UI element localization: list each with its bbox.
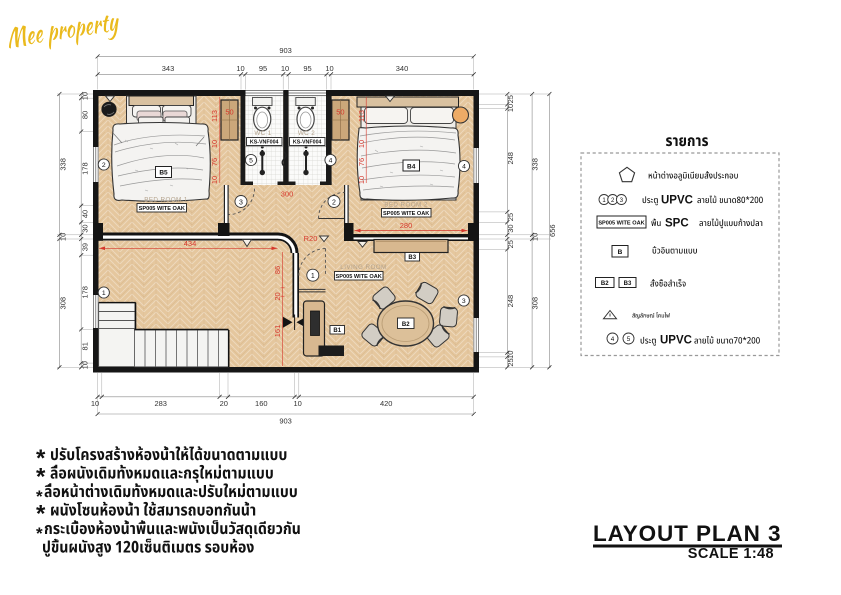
svg-text:1: 1: [311, 273, 315, 280]
svg-text:3: 3: [239, 199, 243, 206]
svg-text:113: 113: [210, 110, 219, 122]
svg-text:76: 76: [210, 158, 219, 166]
svg-text:B5: B5: [159, 170, 168, 177]
svg-text:LIVING ROOM: LIVING ROOM: [340, 264, 386, 271]
svg-text:10: 10: [236, 64, 244, 73]
svg-text:UPVC: UPVC: [660, 335, 692, 347]
svg-text:1: 1: [102, 290, 106, 297]
svg-text:283: 283: [154, 399, 167, 408]
svg-text:SP005 WITE OAK: SP005 WITE OAK: [336, 274, 382, 280]
svg-text:SPC: SPC: [665, 218, 689, 230]
svg-text:80: 80: [80, 111, 89, 119]
svg-text:40: 40: [80, 210, 89, 218]
svg-text:SP005 WITE OAK: SP005 WITE OAK: [383, 211, 429, 217]
svg-text:10: 10: [58, 233, 67, 241]
svg-text:113: 113: [357, 110, 366, 122]
svg-text:25: 25: [506, 95, 515, 103]
svg-text:343: 343: [162, 64, 175, 73]
svg-text:3: 3: [462, 298, 466, 305]
svg-text:420: 420: [380, 399, 393, 408]
svg-text:10: 10: [506, 104, 515, 112]
svg-text:248: 248: [506, 295, 515, 308]
svg-text:10: 10: [531, 233, 540, 241]
svg-text:161: 161: [273, 325, 282, 338]
svg-text:338: 338: [531, 158, 540, 171]
svg-text:R20: R20: [304, 234, 318, 243]
svg-text:*: *: [36, 524, 43, 543]
svg-text:2: 2: [102, 162, 106, 169]
svg-text:20: 20: [220, 399, 228, 408]
svg-text:30: 30: [506, 224, 515, 232]
svg-text:10: 10: [357, 176, 366, 184]
svg-text:LAYOUT PLAN 3: LAYOUT PLAN 3: [593, 521, 781, 546]
svg-text:5: 5: [249, 158, 253, 165]
svg-text:903: 903: [279, 417, 292, 426]
svg-text:WC 2: WC 2: [298, 130, 315, 137]
svg-text:KS-VNF004: KS-VNF004: [250, 140, 279, 146]
svg-text:39: 39: [80, 243, 89, 251]
svg-text:308: 308: [58, 297, 67, 310]
svg-text:BED ROOM 1: BED ROOM 1: [144, 197, 188, 204]
svg-text:25: 25: [506, 240, 515, 248]
svg-text:10: 10: [91, 399, 99, 408]
svg-text:248: 248: [506, 152, 515, 165]
svg-text:10: 10: [325, 64, 333, 73]
svg-text:340: 340: [396, 64, 409, 73]
svg-text:338: 338: [58, 158, 67, 171]
svg-text:25: 25: [506, 213, 515, 221]
svg-text:10: 10: [80, 361, 89, 369]
svg-text:903: 903: [279, 46, 292, 55]
svg-text:BED ROOM 2: BED ROOM 2: [384, 202, 428, 209]
svg-text:UPVC: UPVC: [661, 195, 693, 207]
svg-text:86: 86: [273, 266, 282, 274]
svg-text:10: 10: [281, 64, 289, 73]
svg-text:10: 10: [294, 399, 302, 408]
svg-text:4: 4: [462, 164, 466, 171]
svg-text:B3: B3: [624, 281, 632, 287]
svg-text:30: 30: [80, 224, 89, 232]
svg-text:B: B: [618, 249, 623, 256]
svg-text:160: 160: [255, 399, 268, 408]
svg-text:81: 81: [80, 342, 89, 350]
svg-text:SCALE 1:48: SCALE 1:48: [688, 546, 774, 562]
svg-text:KS-VNF004: KS-VNF004: [293, 140, 322, 146]
svg-text:50: 50: [336, 108, 344, 117]
svg-text:B3: B3: [408, 255, 416, 261]
svg-text:178: 178: [80, 162, 89, 175]
svg-text:10: 10: [80, 92, 89, 100]
svg-text:434: 434: [184, 239, 197, 248]
svg-text:280: 280: [400, 221, 413, 230]
svg-text:2: 2: [332, 199, 336, 206]
svg-text:WC 1: WC 1: [254, 130, 271, 137]
svg-text:178: 178: [80, 286, 89, 299]
svg-text:10: 10: [210, 176, 219, 184]
svg-text:SP005 WITE OAK: SP005 WITE OAK: [598, 220, 644, 226]
svg-text:10: 10: [210, 140, 219, 148]
svg-text:656: 656: [548, 224, 557, 237]
svg-text:5: 5: [627, 336, 631, 343]
svg-text:B4: B4: [407, 164, 416, 171]
svg-text:25: 25: [506, 358, 515, 366]
svg-text:95: 95: [303, 64, 311, 73]
svg-text:B2: B2: [601, 281, 609, 287]
svg-text:B2: B2: [402, 322, 410, 328]
svg-text:50: 50: [225, 108, 233, 117]
svg-text:4: 4: [329, 158, 333, 165]
svg-text:4: 4: [611, 336, 615, 343]
svg-text:95: 95: [259, 64, 267, 73]
svg-text:308: 308: [531, 297, 540, 310]
svg-text:20: 20: [273, 292, 282, 300]
svg-text:SP005 WITE OAK: SP005 WITE OAK: [139, 206, 185, 212]
svg-text:76: 76: [357, 158, 366, 166]
svg-text:B1: B1: [333, 328, 341, 334]
svg-text:10: 10: [357, 140, 366, 148]
svg-text:10: 10: [506, 351, 515, 359]
svg-text:300: 300: [281, 190, 294, 199]
